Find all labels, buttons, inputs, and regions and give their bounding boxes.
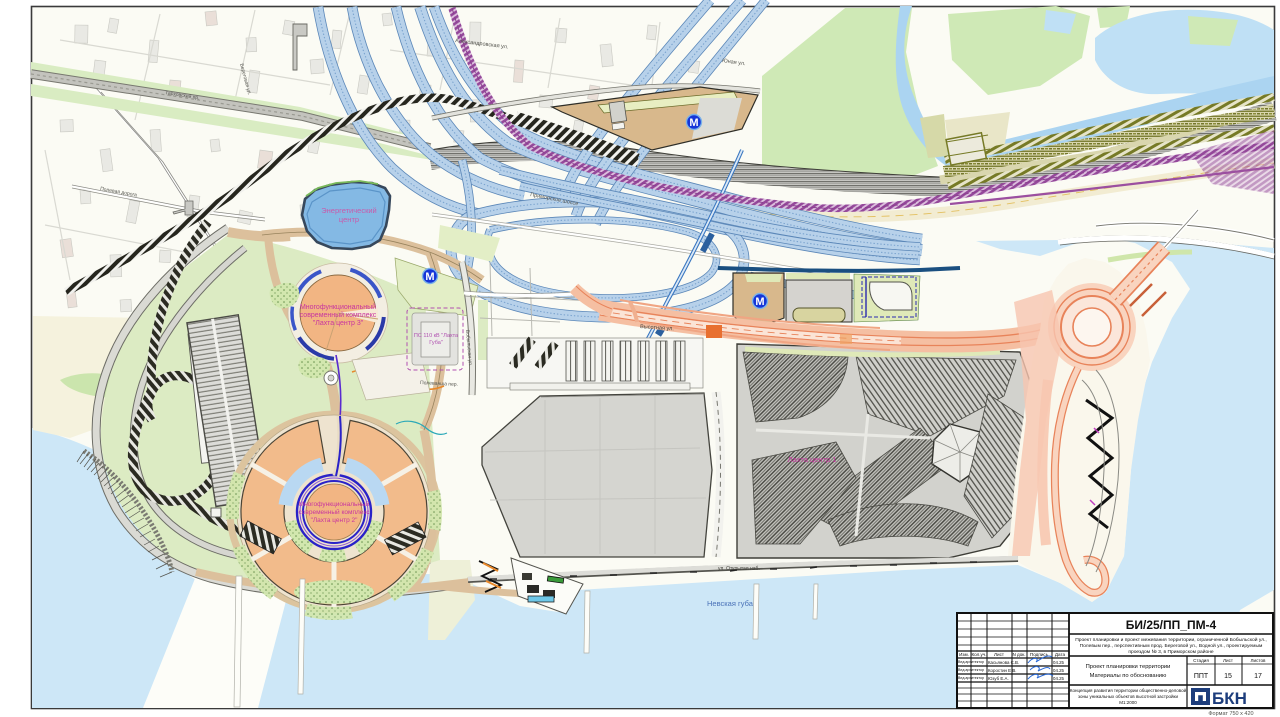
- svg-text:ул. Открытая наб.: ул. Открытая наб.: [718, 566, 760, 572]
- svg-text:Невская губа: Невская губа: [707, 599, 754, 608]
- svg-text:Кол.уч.: Кол.уч.: [971, 652, 986, 657]
- svg-text:15: 15: [1224, 673, 1232, 680]
- svg-text:Вед.архитектор: Вед.архитектор: [958, 660, 984, 664]
- svg-text:Стадия: Стадия: [1193, 658, 1209, 663]
- svg-text:Лист: Лист: [1223, 658, 1234, 663]
- svg-text:Многофункциональный: Многофункциональный: [300, 303, 376, 311]
- svg-text:"Лахта центр 2": "Лахта центр 2": [311, 517, 359, 524]
- svg-text:Вед.архитектор: Вед.архитектор: [958, 668, 984, 672]
- svg-text:Вед.архитектор: Вед.архитектор: [958, 676, 984, 680]
- svg-text:Лахта центр 1: Лахта центр 1: [788, 455, 837, 464]
- svg-text:Материалы по обоснованию: Материалы по обоснованию: [1090, 673, 1167, 679]
- svg-text:Губа": Губа": [429, 340, 443, 346]
- svg-text:Многофункциональный: Многофункциональный: [299, 500, 370, 508]
- svg-text:04.25: 04.25: [1053, 676, 1065, 681]
- svg-text:Формат 750 х 420: Формат 750 х 420: [1208, 711, 1253, 717]
- svg-text:современный комплекс: современный комплекс: [298, 508, 370, 516]
- svg-text:17: 17: [1254, 673, 1262, 680]
- svg-text:БИ/25/ПП_ПМ-4: БИ/25/ПП_ПМ-4: [1126, 618, 1217, 632]
- svg-text:04.25: 04.25: [1053, 660, 1065, 665]
- svg-text:"Лахта центр 3": "Лахта центр 3": [313, 320, 364, 327]
- svg-text:Полевым пер., перспективным пр: Полевым пер., перспективным прод. Берего…: [1080, 642, 1263, 649]
- svg-text:ПС 110 кВ "Лахта: ПС 110 кВ "Лахта: [414, 333, 459, 339]
- svg-text:зоны уникальных объектов высот: зоны уникальных объектов высотной застро…: [1078, 693, 1178, 699]
- svg-text:Проект планировки и проект меж: Проект планировки и проект межевания тер…: [1075, 636, 1267, 643]
- svg-text:Коростин Е.В.: Коростин Е.В.: [988, 668, 1016, 673]
- svg-text:N док.: N док.: [1012, 652, 1025, 657]
- svg-text:04.25: 04.25: [1053, 668, 1065, 673]
- svg-text:БКН: БКН: [1212, 689, 1247, 708]
- svg-text:Касьянова С.В.: Касьянова С.В.: [988, 660, 1019, 665]
- svg-text:Концепция развития территории: Концепция развития территории общественн…: [1070, 687, 1187, 693]
- svg-text:M: M: [689, 117, 698, 129]
- svg-text:M: M: [425, 271, 434, 283]
- svg-text:Энергетический: Энергетический: [321, 206, 376, 215]
- svg-text:М1:2000: М1:2000: [1119, 700, 1137, 705]
- svg-text:Юзуб Е.А.: Юзуб Е.А.: [988, 676, 1009, 681]
- svg-text:центр: центр: [339, 215, 359, 224]
- svg-text:M: M: [755, 296, 764, 308]
- svg-text:проездом № 3, в Приморском рай: проездом № 3, в Приморском районе: [1128, 648, 1214, 655]
- svg-text:Листов: Листов: [1251, 658, 1266, 663]
- svg-text:Проект планировки территории: Проект планировки территории: [1086, 664, 1171, 670]
- svg-text:ППТ: ППТ: [1194, 673, 1209, 680]
- svg-text:Дата: Дата: [1055, 652, 1066, 657]
- svg-text:современный комплекс: современный комплекс: [300, 311, 377, 319]
- svg-text:Изм.: Изм.: [959, 652, 969, 657]
- svg-text:Лист: Лист: [994, 652, 1005, 657]
